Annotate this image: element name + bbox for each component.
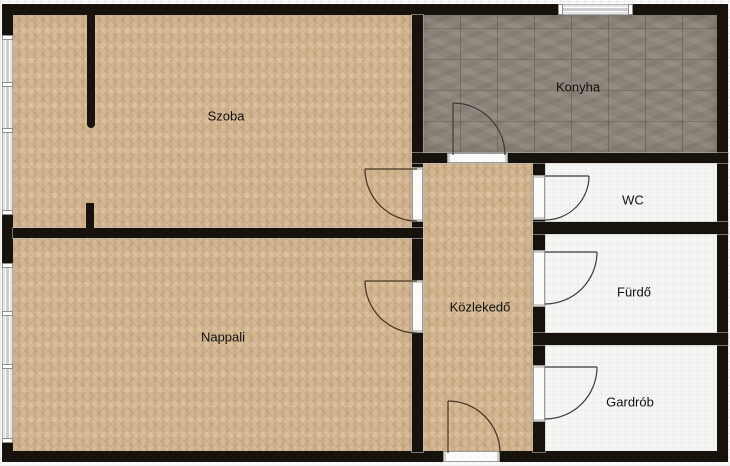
szoba-door-threshold — [412, 167, 423, 222]
window-mullion-icon — [2, 128, 13, 133]
window-mullion-icon — [2, 82, 13, 87]
room-label-wc: WC — [622, 193, 644, 208]
window-mullion-icon — [2, 210, 13, 215]
room-furdo-floor — [545, 234, 717, 333]
konyha-window — [558, 4, 633, 15]
room-label-szoba: Szoba — [208, 109, 245, 124]
window-mullion-icon — [2, 35, 13, 40]
room-label-kozlekedo: Közlekedő — [450, 300, 511, 315]
room-label-gardrob: Gardrób — [606, 395, 654, 410]
window-mullion-icon — [558, 4, 563, 15]
wall-wc-furdo — [533, 222, 728, 234]
room-label-furdo: Fürdő — [617, 285, 651, 300]
room-nappali-floor — [13, 238, 412, 452]
window-mullion-icon — [628, 4, 633, 15]
nappali-window — [2, 263, 13, 443]
window-mullion-icon — [2, 311, 13, 316]
szoba-divider-stub-wall — [86, 203, 94, 228]
nappali-door-threshold — [412, 280, 423, 333]
window-mullion-icon — [2, 364, 13, 369]
szoba-window — [2, 35, 13, 215]
window-mullion-icon — [2, 438, 13, 443]
floor-plan: Szoba Konyha WC Közlekedő Fürdő Gardrób … — [0, 0, 730, 466]
room-label-konyha: Konyha — [556, 80, 600, 95]
wall-furdo-gardrob — [533, 333, 728, 345]
furdo-door-threshold — [533, 250, 545, 307]
gardrob-door-threshold — [533, 365, 545, 422]
wc-door-threshold — [533, 175, 545, 220]
window-mullion-icon — [2, 263, 13, 268]
outer-wall-bottom — [2, 451, 728, 462]
room-label-nappali: Nappali — [201, 330, 245, 345]
entrance-door-threshold — [443, 451, 500, 462]
konyha-door-threshold — [447, 153, 508, 163]
szoba-partial-divider-wall — [87, 15, 95, 128]
wall-szoba-nappali — [13, 228, 423, 238]
